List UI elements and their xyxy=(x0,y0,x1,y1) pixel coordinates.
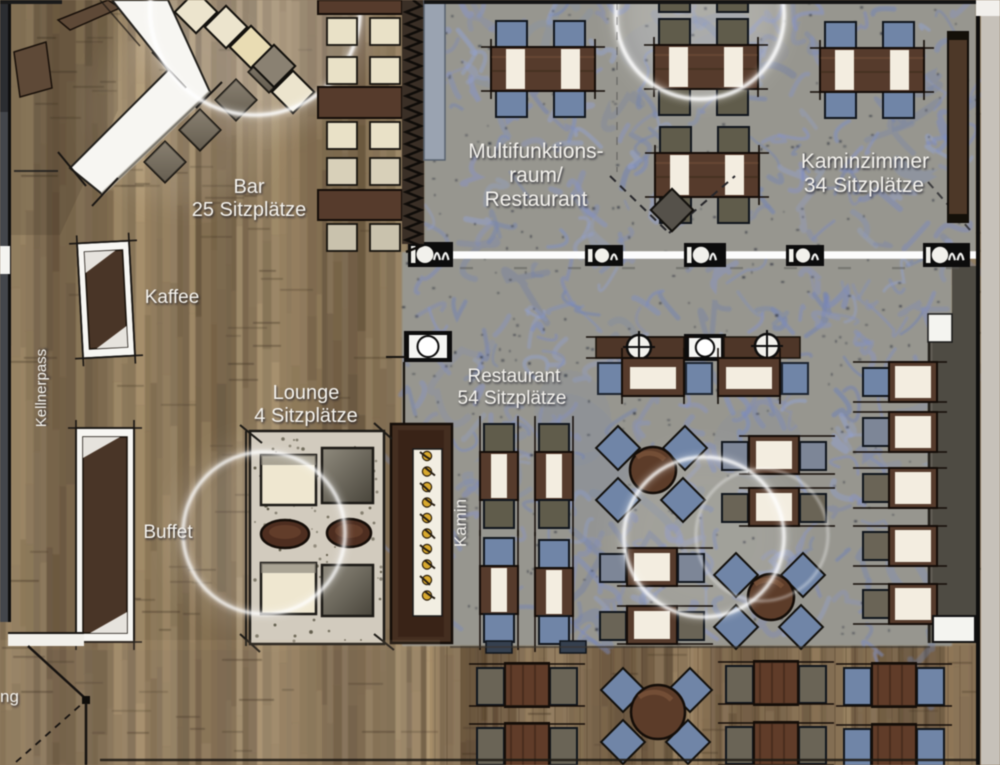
svg-text:Kellnerpass: Kellnerpass xyxy=(33,349,50,427)
svg-text:34 Sitzplätze: 34 Sitzplätze xyxy=(804,174,924,197)
svg-text:Kaffee: Kaffee xyxy=(145,287,200,308)
svg-text:Bar: Bar xyxy=(233,176,264,198)
svg-text:54 Sitzplätze: 54 Sitzplätze xyxy=(458,388,567,409)
svg-text:4 Sitzplätze: 4 Sitzplätze xyxy=(254,405,357,427)
svg-text:25 Sitzplätze: 25 Sitzplätze xyxy=(192,199,307,221)
svg-text:Lounge: Lounge xyxy=(273,382,340,404)
svg-text:Multifunktions-: Multifunktions- xyxy=(468,140,603,163)
svg-text:Restaurant: Restaurant xyxy=(468,366,562,387)
svg-text:raum/: raum/ xyxy=(509,164,563,187)
svg-text:Restaurant: Restaurant xyxy=(485,188,588,211)
svg-text:ng: ng xyxy=(0,687,19,706)
svg-text:Buffet: Buffet xyxy=(143,522,193,543)
svg-text:Kaminzimmer: Kaminzimmer xyxy=(801,150,929,173)
svg-text:Kamin: Kamin xyxy=(451,499,470,547)
